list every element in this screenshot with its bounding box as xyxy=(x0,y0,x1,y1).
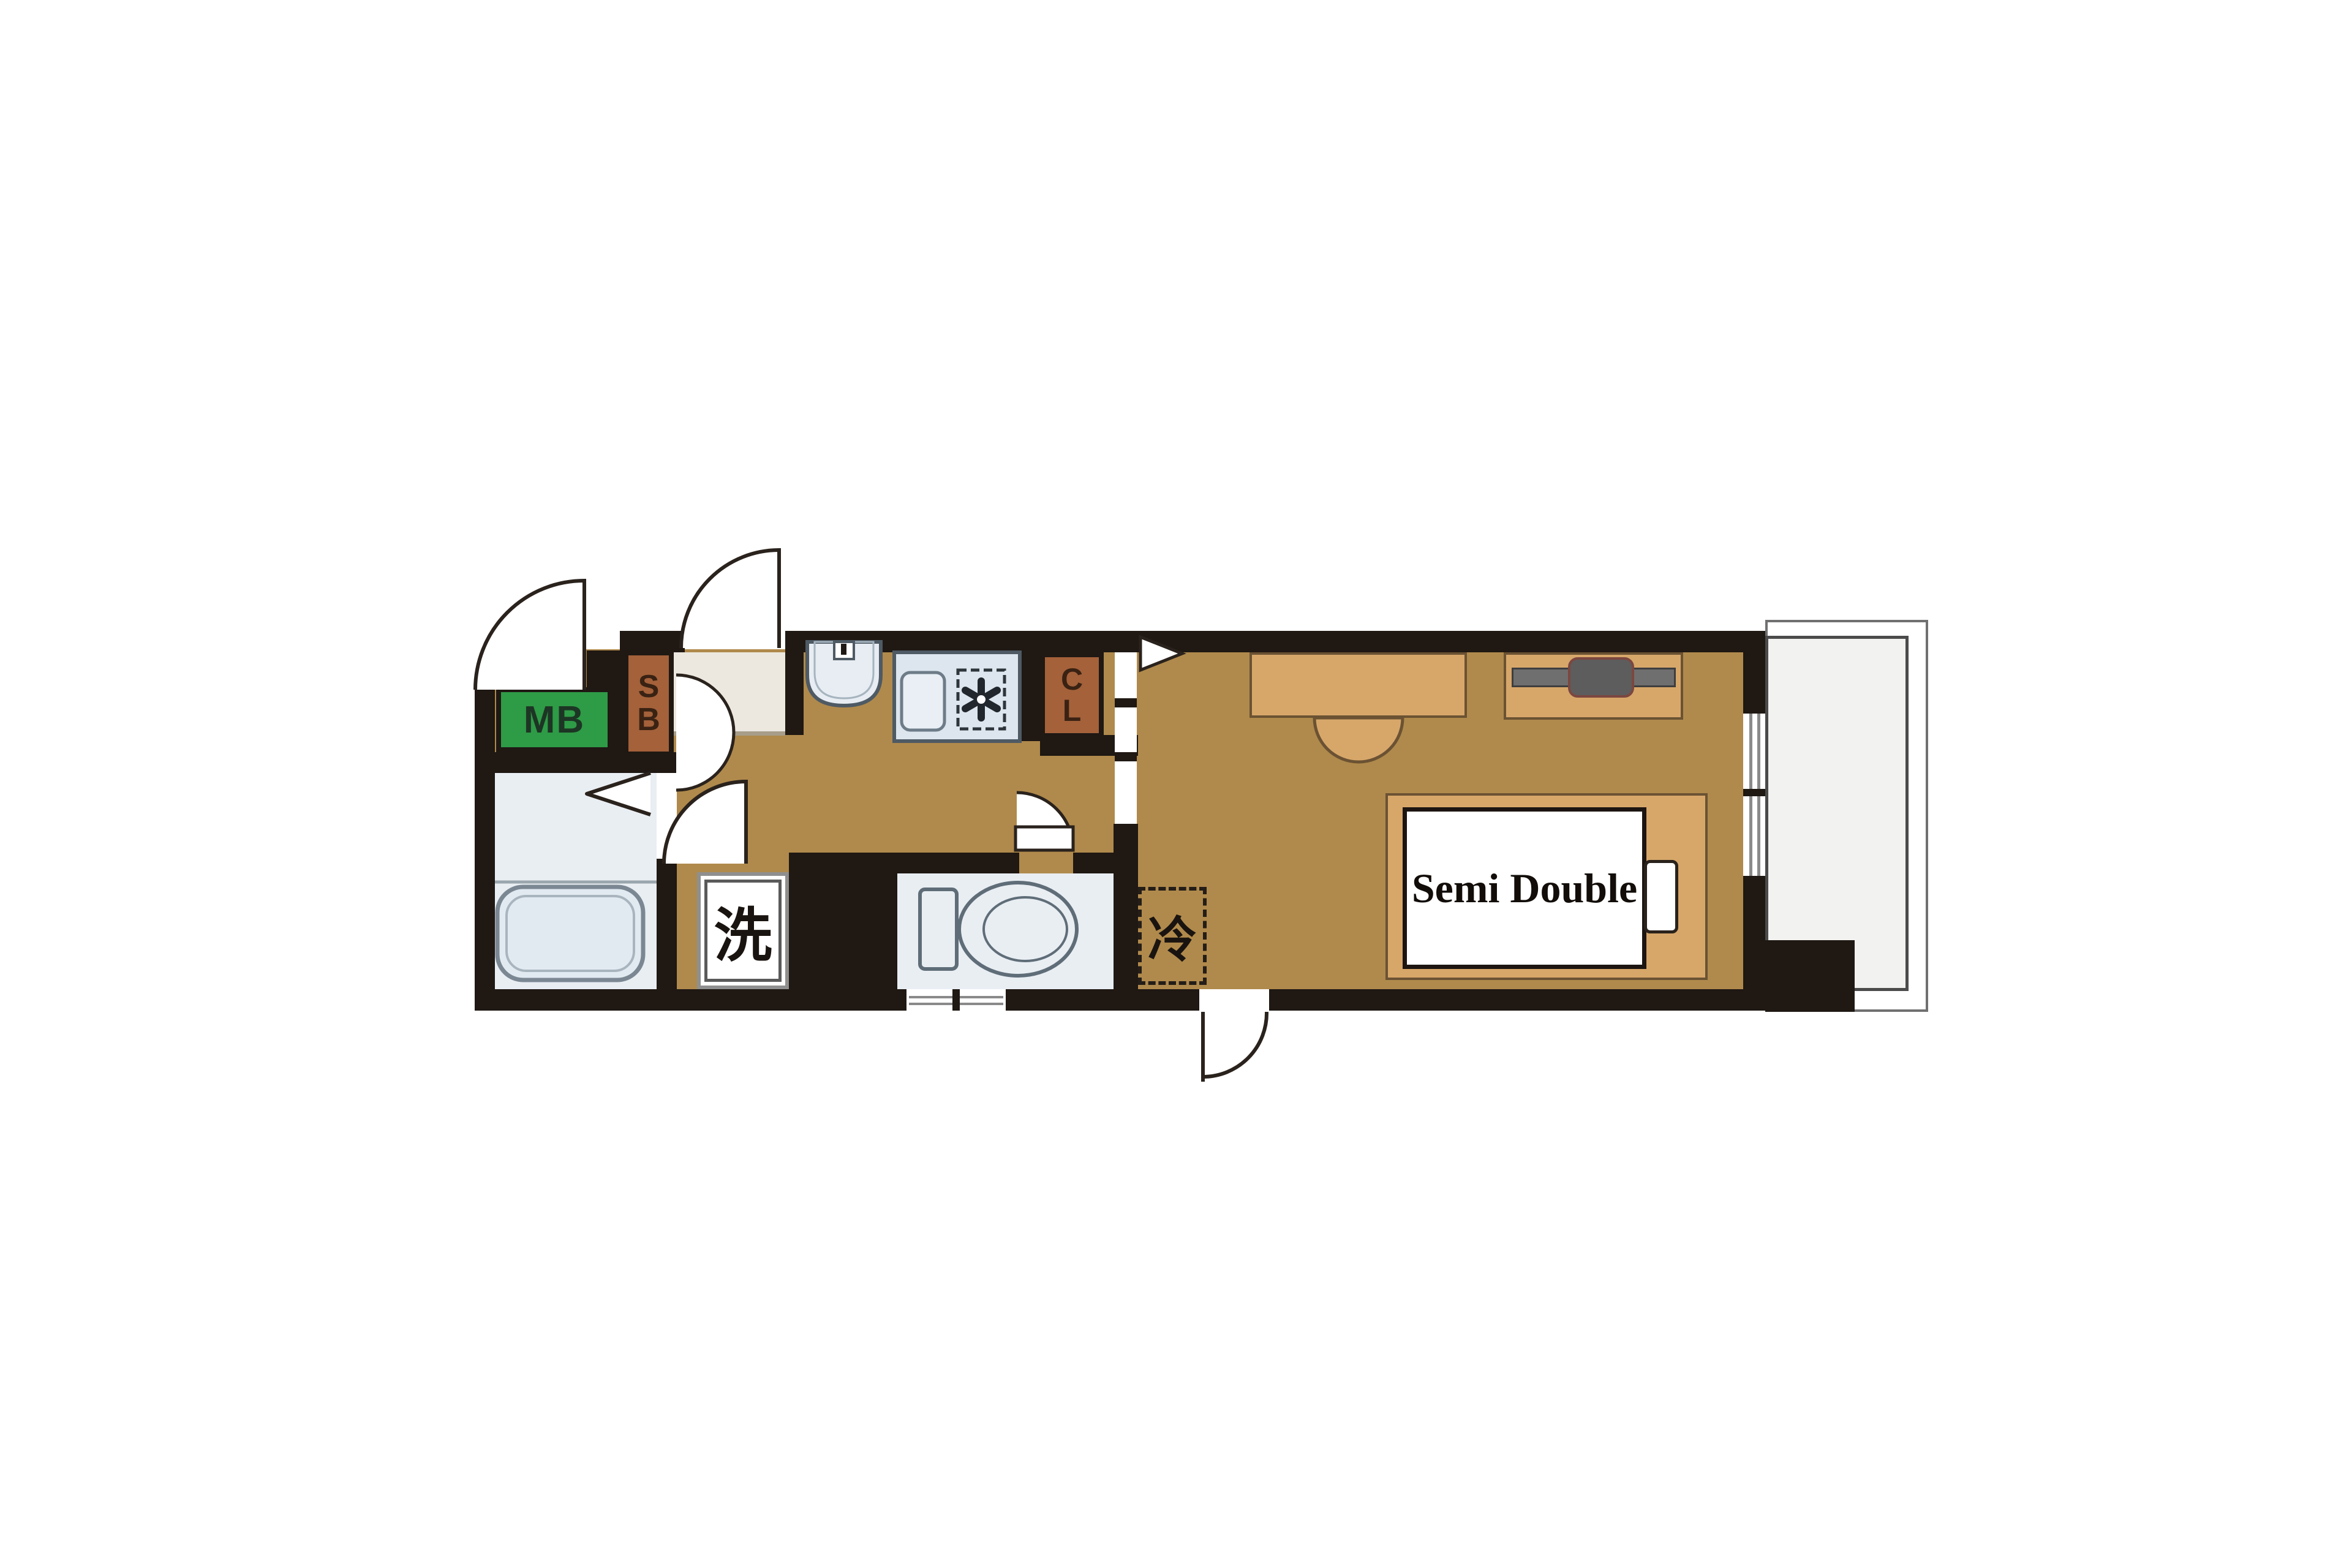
window-center-tick xyxy=(952,989,960,1011)
meter-box-label: MB xyxy=(496,687,612,752)
entrance-door-arc xyxy=(681,550,779,648)
wall xyxy=(1743,876,1765,1011)
refrigerator-label: 冷 xyxy=(1138,887,1207,985)
room-sliding-door xyxy=(1115,652,1137,824)
balcony xyxy=(1765,636,1909,991)
wall xyxy=(657,859,677,989)
door-track-tick xyxy=(1115,698,1137,707)
wall xyxy=(789,853,897,1011)
floor-plan: Semi Double MB S B C L 洗 冷 xyxy=(0,0,2352,1568)
window-center-tick xyxy=(1743,789,1765,796)
wall xyxy=(1114,824,1138,989)
bed-size-label: Semi Double xyxy=(1412,864,1637,913)
wall xyxy=(897,853,1019,873)
wall xyxy=(620,631,685,652)
washing-machine-label: 洗 xyxy=(697,872,789,989)
wall xyxy=(677,729,698,773)
wall xyxy=(1073,853,1114,873)
entrance-floor xyxy=(674,652,785,735)
wall xyxy=(1020,652,1040,741)
wall xyxy=(475,690,495,1011)
wall xyxy=(1269,989,1765,1011)
bed-pillow xyxy=(1644,860,1678,933)
tv-pedestal xyxy=(1568,657,1634,698)
shoe-box-label: S B xyxy=(624,650,674,756)
desk xyxy=(1249,652,1467,718)
exterior-doorway xyxy=(1199,989,1269,1011)
closet-label: C L xyxy=(1040,652,1104,738)
wall xyxy=(1743,652,1765,714)
toilet-floor xyxy=(897,873,1114,989)
wall xyxy=(785,652,804,735)
bathroom-doorway xyxy=(657,773,677,859)
wall xyxy=(1765,940,1855,1012)
door-track-tick xyxy=(1115,752,1137,761)
wall xyxy=(475,989,907,1011)
exterior-door-arc xyxy=(1203,1012,1267,1082)
wall xyxy=(785,631,1765,652)
bed: Semi Double xyxy=(1403,807,1646,969)
bathroom-floor xyxy=(495,773,657,989)
wall xyxy=(1006,989,1199,1011)
